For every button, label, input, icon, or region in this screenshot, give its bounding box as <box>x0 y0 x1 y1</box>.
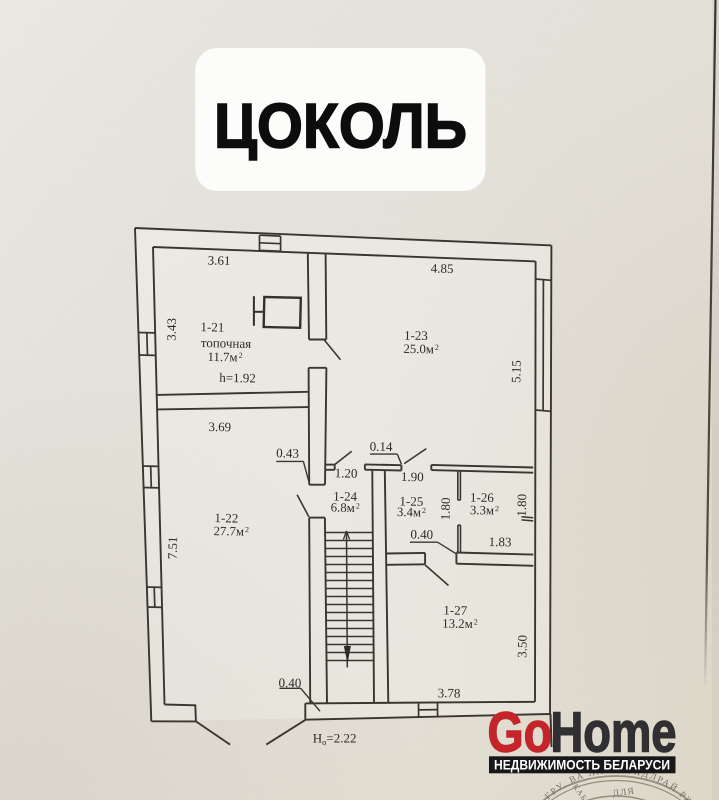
svg-text:h=1.92: h=1.92 <box>219 370 256 386</box>
svg-text:3.69: 3.69 <box>208 419 231 434</box>
svg-text:Home: Home <box>551 701 677 765</box>
svg-text:1-21: 1-21 <box>200 319 224 334</box>
svg-text:25.0м2: 25.0м2 <box>403 342 439 357</box>
svg-text:НЕДВИЖИМОСТЬ БЕЛАРУСИ: НЕДВИЖИМОСТЬ БЕЛАРУСИ <box>494 758 670 773</box>
svg-text:0.43: 0.43 <box>276 445 299 460</box>
svg-text:Go: Go <box>488 701 553 765</box>
svg-text:3.50: 3.50 <box>514 635 530 658</box>
svg-text:1-23: 1-23 <box>404 328 428 343</box>
svg-text:5.15: 5.15 <box>508 360 524 383</box>
svg-text:0.40: 0.40 <box>278 675 301 690</box>
svg-text:0.14: 0.14 <box>370 439 394 454</box>
svg-text:ЦОКОЛЬ: ЦОКОЛЬ <box>214 92 467 162</box>
svg-text:27.7м2: 27.7м2 <box>213 524 249 539</box>
svg-text:1.90: 1.90 <box>401 469 424 484</box>
svg-text:Ho=2.22: Ho=2.22 <box>313 731 357 748</box>
svg-text:3.61: 3.61 <box>208 253 231 269</box>
svg-text:топочная: топочная <box>201 335 252 351</box>
svg-text:4.85: 4.85 <box>431 261 454 277</box>
svg-text:3.78: 3.78 <box>438 685 461 700</box>
svg-text:3.43: 3.43 <box>164 318 180 341</box>
svg-text:7.51: 7.51 <box>165 536 181 559</box>
svg-text:1.80: 1.80 <box>514 494 530 517</box>
svg-text:11.7м2: 11.7м2 <box>207 350 242 365</box>
svg-text:1.80: 1.80 <box>438 497 454 520</box>
svg-text:1-27: 1-27 <box>443 602 468 617</box>
svg-text:13.2м2: 13.2м2 <box>442 616 478 631</box>
svg-text:0.40: 0.40 <box>410 527 433 542</box>
svg-text:1.20: 1.20 <box>335 465 358 480</box>
svg-text:1.83: 1.83 <box>489 534 512 549</box>
